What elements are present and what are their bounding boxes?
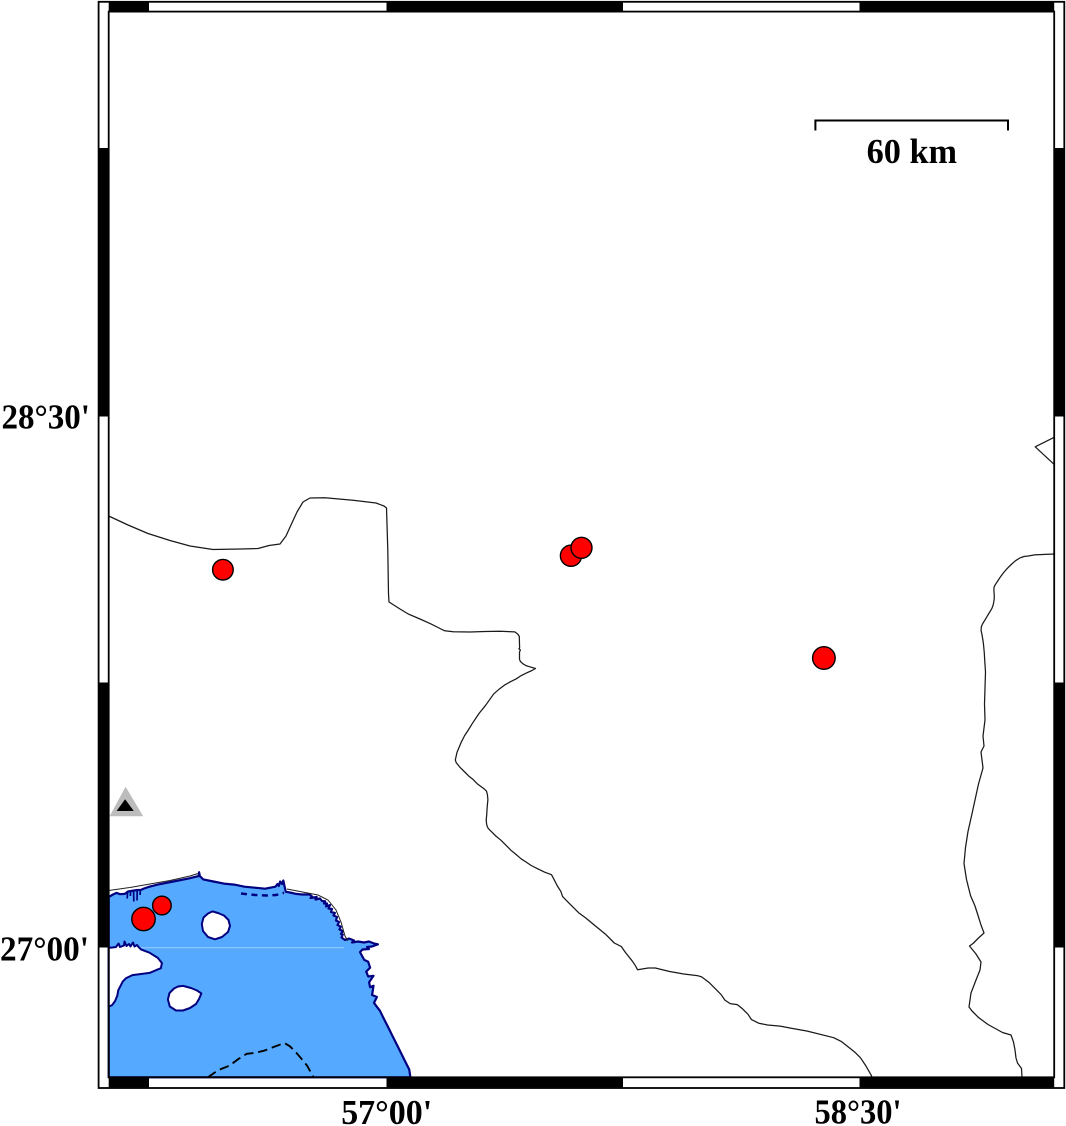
svg-text:57°00': 57°00' [341,1094,432,1126]
svg-text:28°30': 28°30' [2,399,91,437]
svg-text:27°00': 27°00' [0,931,89,969]
svg-text:60 km: 60 km [867,133,958,171]
svg-text:58°30': 58°30' [815,1094,902,1126]
